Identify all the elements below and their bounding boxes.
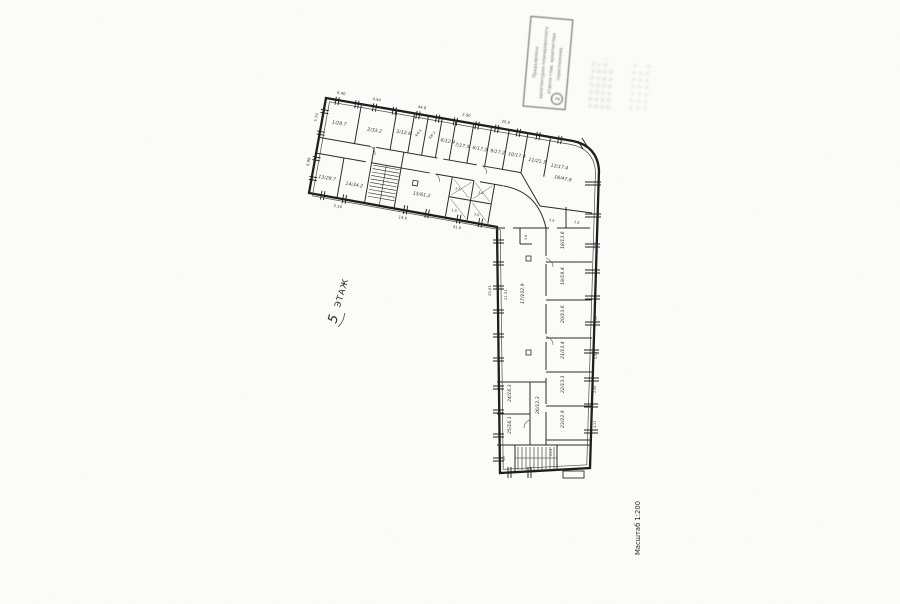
room-label: 21/13.4 bbox=[560, 341, 566, 359]
room-label: 20/13.6 bbox=[560, 305, 566, 323]
dimension-label: 25.61 bbox=[487, 285, 492, 296]
dimension-label: 21.4 bbox=[549, 449, 553, 456]
dimension-label: 2.90 bbox=[594, 242, 598, 249]
scanned-drawing-page: 1/28.7 2/33.2 3/12.8 4/6.5 5/6.3 6/12.4 … bbox=[0, 0, 900, 604]
room-label: 22/13.1 bbox=[560, 375, 566, 393]
room-label: 25/16.1 bbox=[507, 416, 513, 434]
dimension-label: 5.16 bbox=[594, 278, 598, 285]
stamp-circle-number: 2 bbox=[555, 97, 561, 101]
dimension-label: 2.90 bbox=[594, 316, 598, 323]
stair-cell-label: 1б bbox=[501, 456, 506, 461]
dimension-label: 21.51 bbox=[503, 289, 508, 300]
room-label: 26/12.3 bbox=[535, 396, 541, 414]
room-label: 18/13.6 bbox=[560, 231, 566, 249]
dimension-label: 3.6 bbox=[524, 235, 528, 240]
scanned-floor-plan: 1/28.7 2/33.2 3/12.8 4/6.5 5/6.3 6/12.4 … bbox=[0, 0, 900, 604]
room-label: 23/22.9 bbox=[560, 410, 566, 428]
scale-label: Масштаб 1:200 bbox=[634, 501, 642, 555]
dimension-label: 2.90 bbox=[593, 386, 597, 393]
dimension-label: 2.90 bbox=[594, 352, 598, 359]
room-label: 19/19.4 bbox=[560, 267, 566, 285]
room-label: 17/102.9 bbox=[520, 283, 526, 304]
room-label: 24/16.3 bbox=[507, 384, 513, 402]
paper-texture bbox=[0, 0, 900, 604]
dimension-label: 4.21 bbox=[593, 421, 597, 428]
